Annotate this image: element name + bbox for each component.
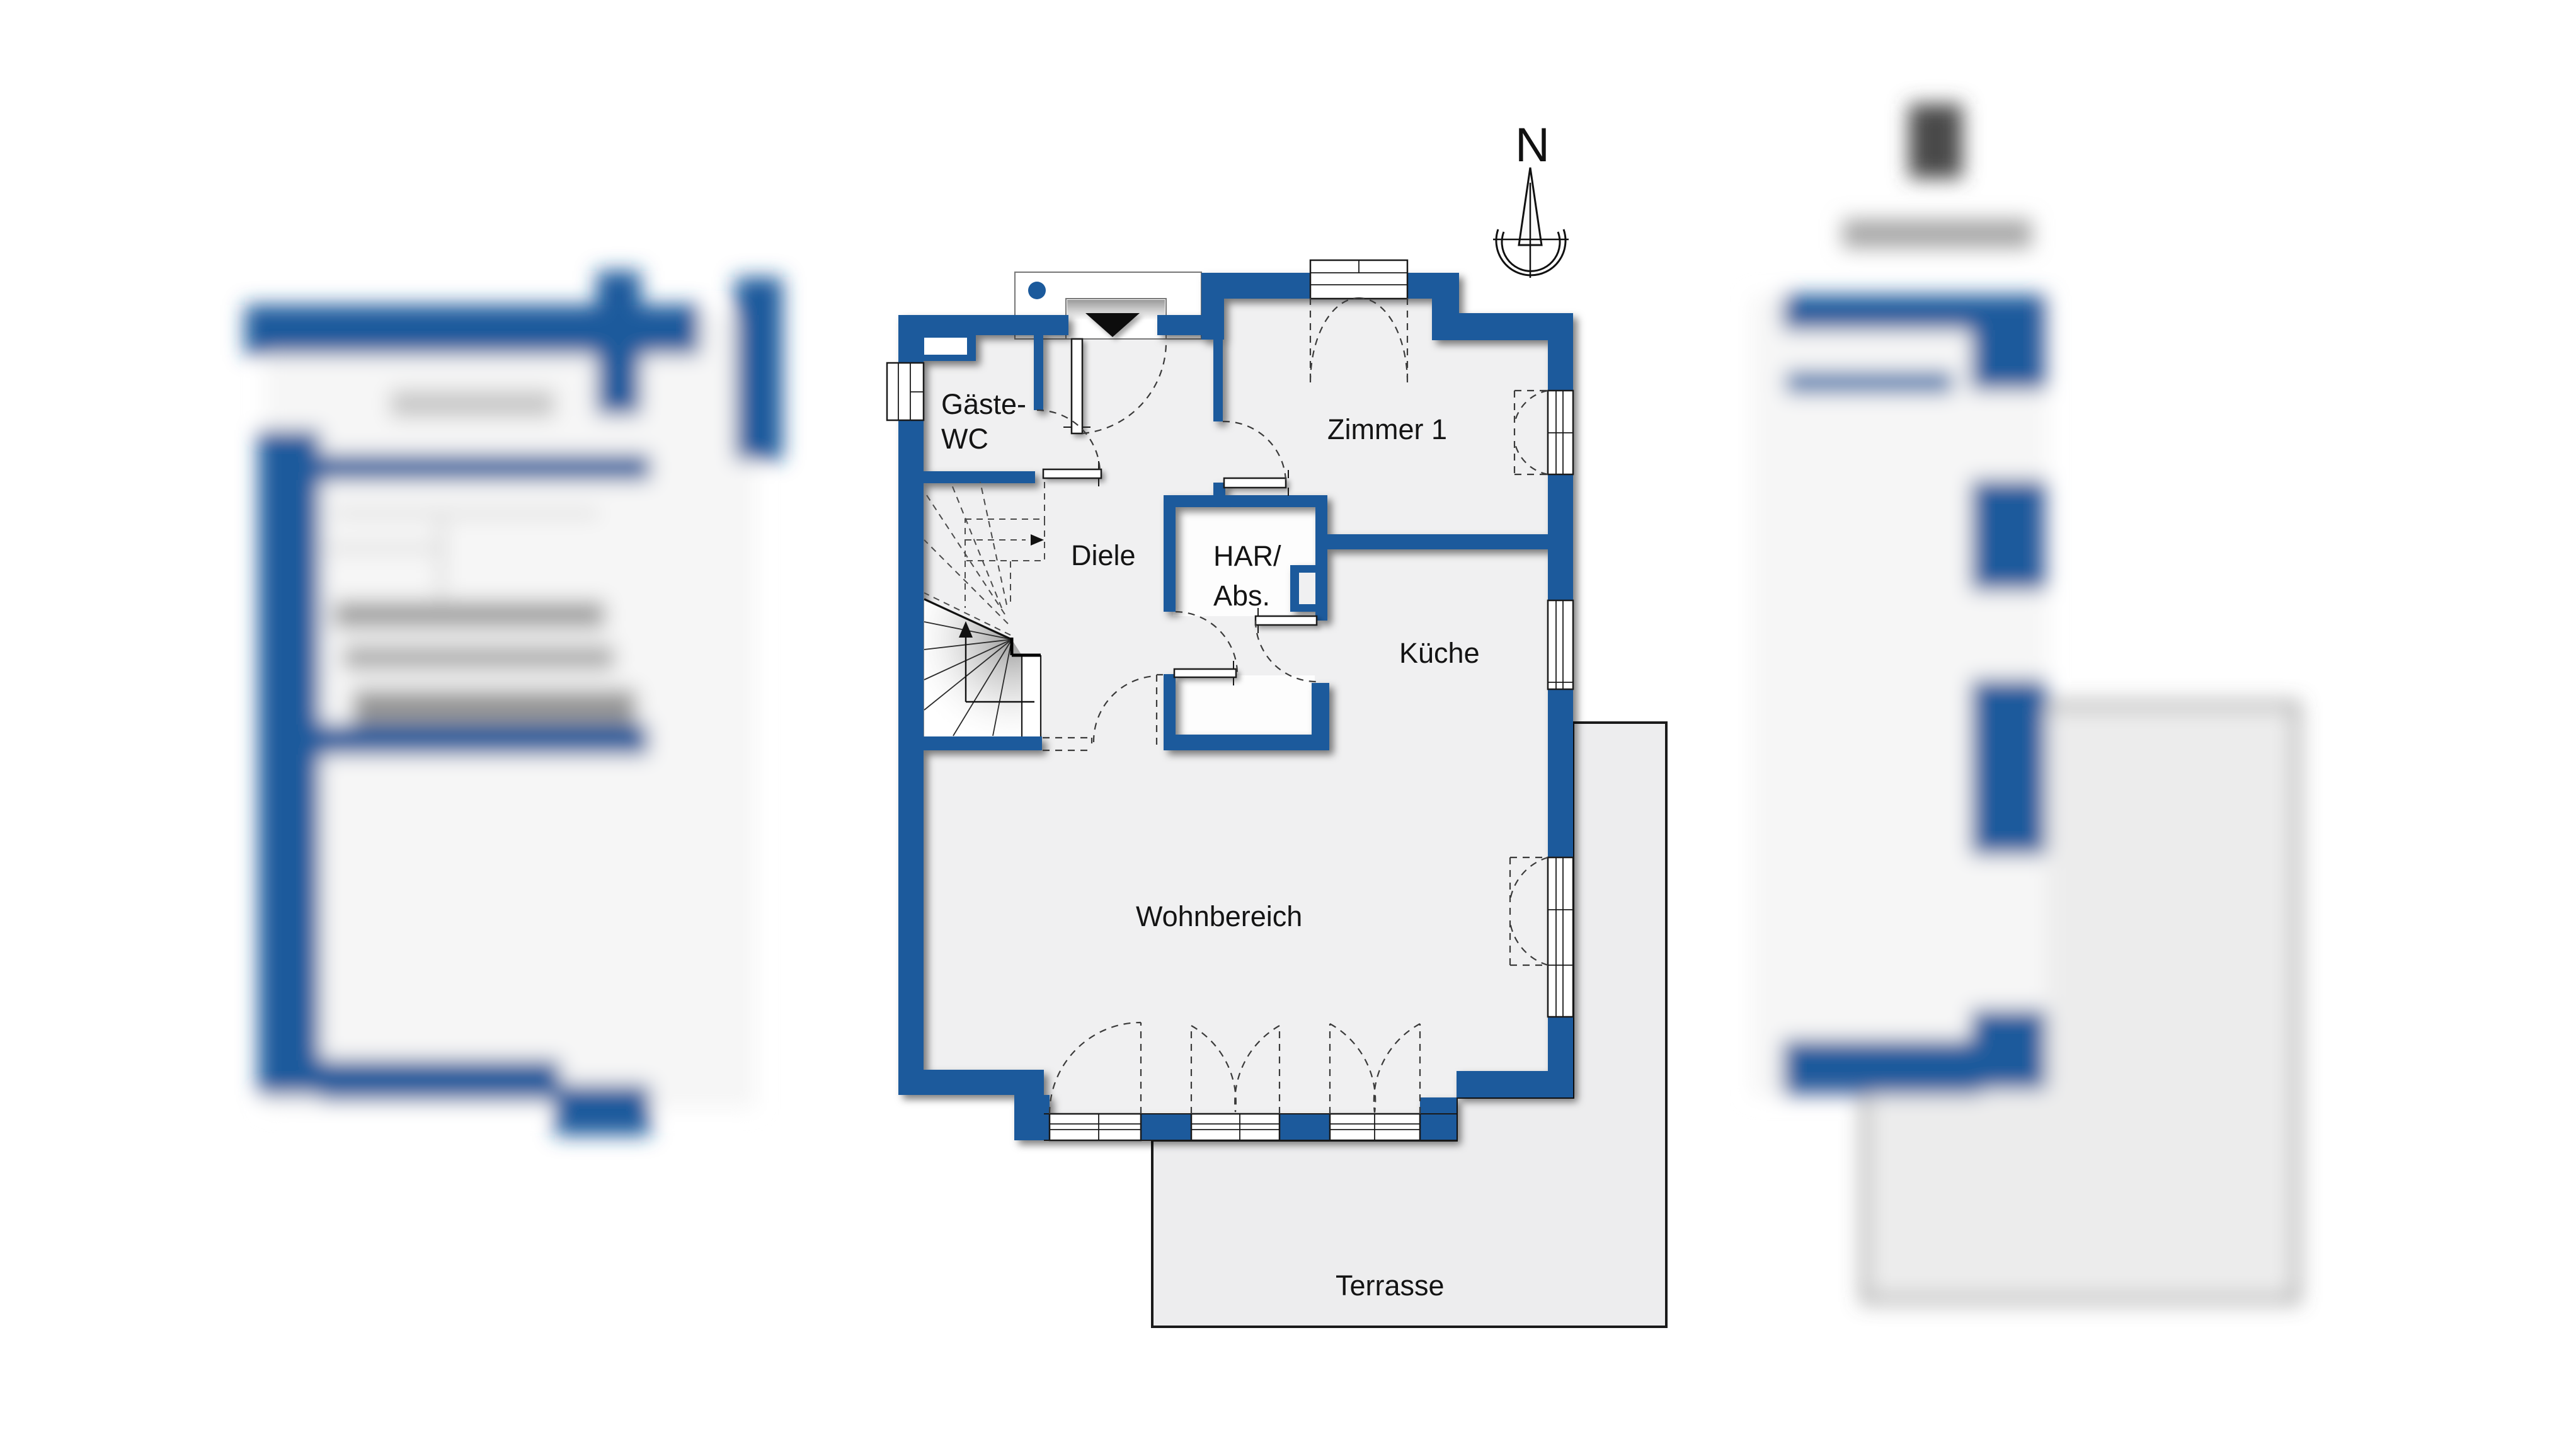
svg-text:Terrasse: Terrasse — [1336, 1269, 1445, 1302]
svg-text:N: N — [1515, 118, 1550, 172]
svg-text:Wohnbereich: Wohnbereich — [1136, 900, 1302, 932]
svg-text:Abs.: Abs. — [1213, 580, 1270, 612]
svg-text:Diele: Diele — [1071, 539, 1136, 571]
svg-text:Zimmer 1: Zimmer 1 — [1327, 413, 1447, 445]
svg-text:HAR/: HAR/ — [1213, 540, 1281, 572]
svg-text:Küche: Küche — [1399, 637, 1480, 669]
svg-text:Gäste-: Gäste- — [941, 388, 1026, 420]
svg-text:WC: WC — [941, 423, 988, 455]
